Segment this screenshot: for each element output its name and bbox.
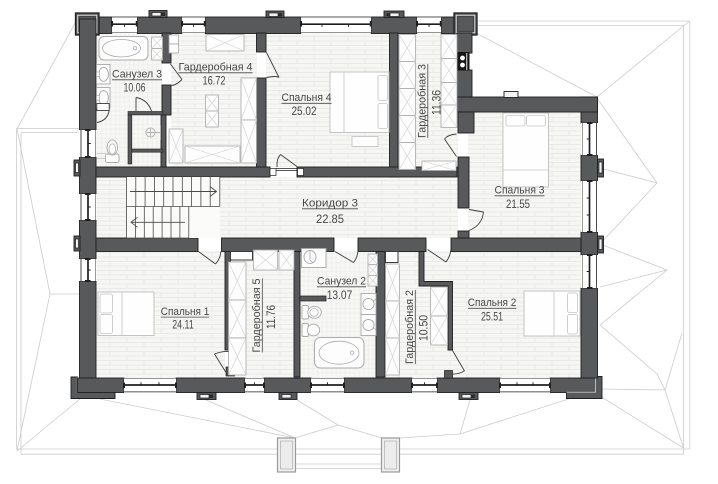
svg-text:25.51: 25.51 (481, 310, 503, 324)
svg-text:11.76: 11.76 (264, 305, 278, 329)
svg-text:Спальня 1: Спальня 1 (161, 306, 210, 318)
svg-text:13.07: 13.07 (327, 288, 353, 302)
svg-text:Гардеробная 4: Гардеробная 4 (179, 62, 253, 74)
svg-text:10.50: 10.50 (417, 315, 431, 341)
svg-text:24.11: 24.11 (172, 318, 194, 332)
svg-text:22.85: 22.85 (316, 212, 344, 226)
svg-text:Спальня 4: Спальня 4 (282, 92, 332, 104)
svg-text:Гардеробная 3: Гардеробная 3 (416, 64, 428, 138)
svg-text:Санузел 2: Санузел 2 (317, 276, 366, 288)
svg-text:10.06: 10.06 (124, 81, 146, 95)
svg-text:Гардеробная 5: Гардеробная 5 (251, 279, 263, 353)
svg-text:16.72: 16.72 (203, 73, 226, 87)
svg-text:21.55: 21.55 (506, 197, 530, 211)
svg-text:Санузел 3: Санузел 3 (112, 69, 162, 81)
svg-text:Спальня 3: Спальня 3 (495, 185, 545, 197)
svg-text:11.36: 11.36 (430, 90, 444, 115)
svg-text:Гардеробная 2: Гардеробная 2 (404, 290, 416, 364)
svg-text:Коридор 3: Коридор 3 (302, 198, 358, 210)
svg-text:Спальня 2: Спальня 2 (468, 297, 517, 309)
svg-text:25.02: 25.02 (292, 104, 317, 118)
